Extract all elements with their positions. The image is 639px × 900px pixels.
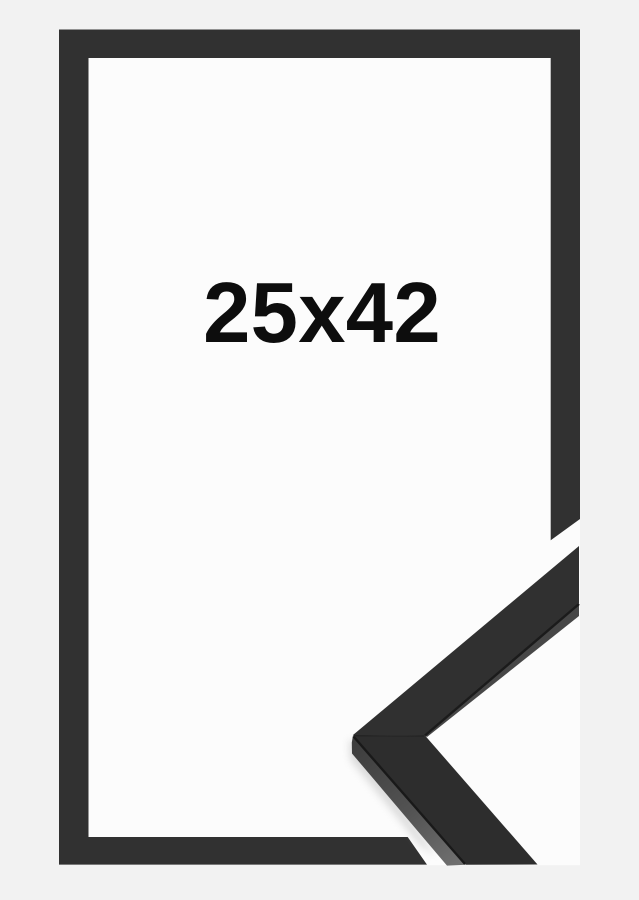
svg-text:25x42: 25x42 — [203, 266, 441, 361]
